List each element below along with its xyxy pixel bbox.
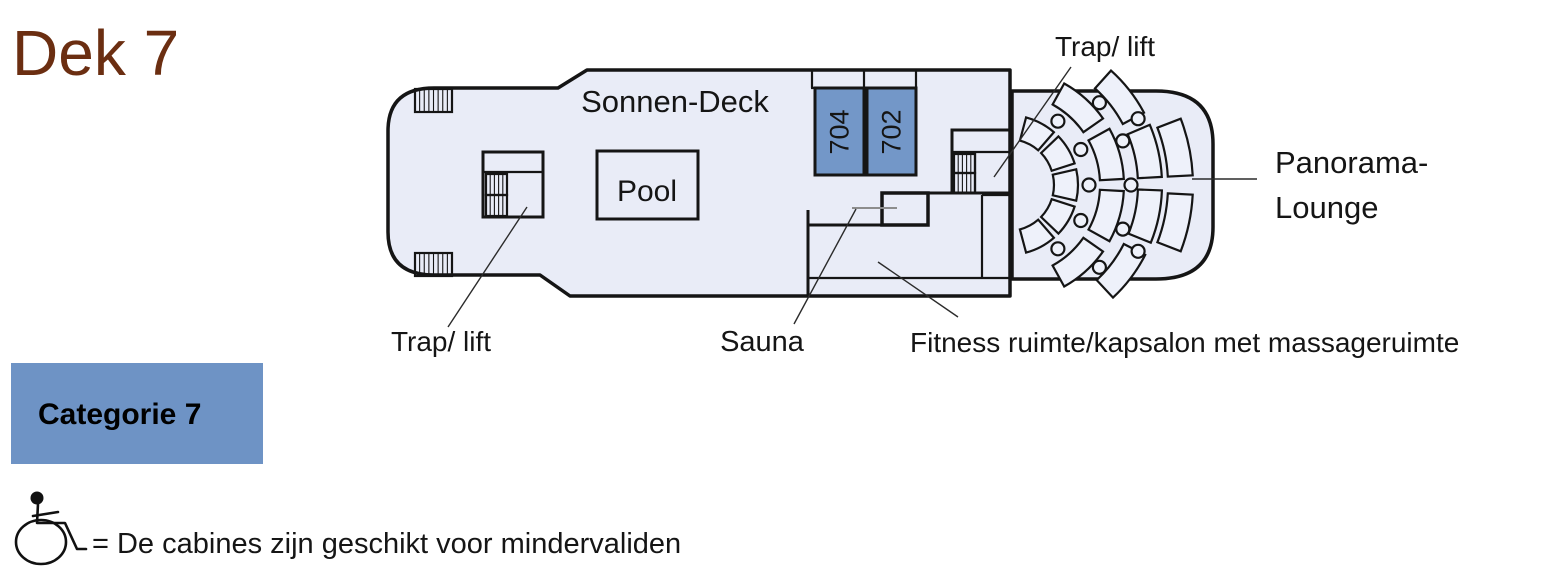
sauna-label: Sauna [720, 326, 805, 358]
panorama-lounge-label: Panorama- [1275, 145, 1428, 180]
cabin-room: 702 [867, 88, 916, 175]
category-badge-label: Categorie 7 [38, 398, 201, 431]
lounge-table [1125, 179, 1138, 192]
wheelchair-icon [16, 492, 86, 565]
lounge-table [1116, 134, 1129, 147]
lounge-table [1093, 96, 1106, 109]
deck-7-plan: 704 702 Pool Sonnen-Deck Trap/ lift Trap… [0, 0, 1548, 577]
lounge-table [1051, 242, 1064, 255]
page-title: Dek 7 [12, 17, 179, 89]
lounge-bench [1053, 169, 1078, 200]
cabin-number: 702 [876, 109, 906, 154]
category-badge: Categorie 7 [11, 363, 263, 464]
deck-plan-page: 704 702 Pool Sonnen-Deck Trap/ lift Trap… [0, 0, 1548, 577]
lounge-table [1074, 214, 1087, 227]
lounge-table [1132, 245, 1145, 258]
lounge-table [1083, 179, 1096, 192]
panorama-lounge-area [1012, 91, 1213, 279]
lounge-table [1132, 112, 1145, 125]
cabin-room: 704 [815, 88, 864, 175]
accessibility-note: = De cabines zijn geschikt voor minderva… [92, 528, 681, 560]
trap-lift-label-top: Trap/ lift [1055, 31, 1155, 62]
lounge-table [1051, 115, 1064, 128]
deck-label: Sonnen-Deck [581, 84, 769, 119]
fitness-label: Fitness ruimte/kapsalon met massageruimt… [910, 327, 1459, 358]
wheelchair-wheel [16, 520, 66, 564]
trap-lift-label-bottom: Trap/ lift [391, 326, 491, 357]
lounge-table [1093, 261, 1106, 274]
lounge-table [1074, 143, 1087, 156]
panorama-lounge-label-line2: Lounge [1275, 190, 1378, 225]
cabin-number: 704 [824, 109, 854, 154]
wheelchair-head [31, 492, 44, 505]
pool-label: Pool [617, 175, 677, 208]
lounge-table [1116, 223, 1129, 236]
